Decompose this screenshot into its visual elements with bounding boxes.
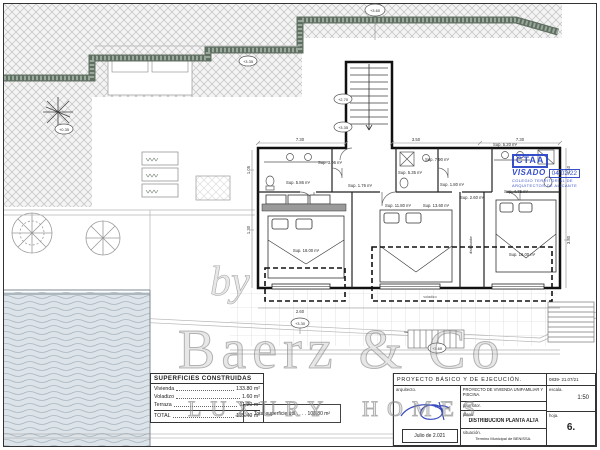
room-label: Sup. 16.00 m² xyxy=(509,252,536,257)
row-label: Terraza xyxy=(154,402,172,408)
dim-label: 3.80 xyxy=(566,235,571,244)
plan-title: DISTRIBUCION PLANTA ALTA xyxy=(468,418,538,424)
palm-tree-symbol xyxy=(43,97,73,127)
corridor-label: distribuidor xyxy=(469,235,473,253)
level-marker: +3.35 xyxy=(338,125,349,130)
drawing-sheet: 7.30 3.50 7.30 1.05 1.30 1.40 3.80 2.60 … xyxy=(0,0,600,450)
level-marker: +2.70 xyxy=(338,97,349,102)
stamp-fine-print-2: ARQUITECTOS DE ALICANTE xyxy=(512,184,600,188)
row-label: Voladizo xyxy=(154,394,174,400)
room-label: Sup. 13.60 m² xyxy=(423,203,450,208)
visado-stamp: CTAA VISADO 04/02/22 COLEGIO TERRITORIAL… xyxy=(512,150,600,189)
deck-square xyxy=(196,176,230,200)
dotted-leader xyxy=(174,406,238,407)
dim-label: 2.60 xyxy=(296,309,305,314)
scale-cell: escala. 1:50 xyxy=(547,386,595,412)
dim-label: 1.05 xyxy=(246,165,251,174)
bed-double xyxy=(496,200,556,272)
dim-label: 1.30 xyxy=(246,225,251,234)
level-marker: +3.60 xyxy=(432,346,443,351)
file-number: 0839- 21.07/21 xyxy=(547,374,595,386)
swimming-pool xyxy=(4,290,150,446)
row-value: 1.60 m² xyxy=(242,394,260,400)
room-label: Sup. 5.35 m² xyxy=(398,170,423,175)
tree-symbol xyxy=(12,213,52,253)
room-label: Sup. 1.80 m² xyxy=(440,182,465,187)
useful-area-box: Total superficie útil . . . . 108.80 m² xyxy=(243,404,341,423)
title-block: PROYECTO BÁSICO Y DE EJECUCIÓN. arquitec… xyxy=(393,373,596,446)
date-box: Julio de 2.021 xyxy=(402,429,458,443)
terrace-paving xyxy=(230,290,558,346)
bed-double xyxy=(380,210,452,282)
tree-symbol xyxy=(86,221,120,255)
table-row: Voladizo 1.60 m² xyxy=(154,394,260,400)
row-label: Vivienda xyxy=(154,386,174,392)
table-row: Vivienda 133.80 m² xyxy=(154,386,260,392)
dotted-leader xyxy=(176,398,240,399)
room-label: Sup. 3.06 m² xyxy=(318,160,343,165)
dim-label: 3.50 xyxy=(412,137,421,142)
location-label: situación. xyxy=(461,429,546,435)
level-marker: +3.30 xyxy=(295,321,306,326)
scale-value: 1:50 xyxy=(547,392,595,401)
ctaa-logo: CTAA xyxy=(512,154,548,168)
room-label: Sup. 18.00 m² xyxy=(293,248,320,253)
sheet-label: hoja. xyxy=(547,412,595,418)
row-label: TOTAL xyxy=(154,413,171,419)
bed-double xyxy=(262,195,346,278)
architect-label: arquitecto. xyxy=(394,386,460,392)
dim-label: 7.30 xyxy=(296,137,305,142)
room-label: Sup. 4.75 m² xyxy=(504,189,529,194)
sheet-number: 6. xyxy=(547,422,595,433)
dim-label: 7.30 xyxy=(516,137,525,142)
balcony-label: voladizo xyxy=(423,295,436,299)
level-marker: +3.35 xyxy=(243,59,254,64)
room-label: Sup. 11.80 m² xyxy=(385,203,412,208)
windows xyxy=(272,284,544,289)
room-label: Sup. 5.20 m² xyxy=(493,142,518,147)
visado-label: VISADO xyxy=(512,169,546,178)
level-marker: +0.35 xyxy=(59,127,70,132)
sheet-number-cell: hoja. 6. xyxy=(547,412,595,445)
room-label: Sup. 7.90 m² xyxy=(425,157,450,162)
areas-table-title: SUPERFICIES CONSTRUIDAS xyxy=(150,373,264,384)
location-cell: situación. Termino Municipal de BENISSA. xyxy=(461,429,546,445)
row-value: 133.80 m² xyxy=(236,386,260,392)
level-marker: +3.60 xyxy=(370,8,381,13)
project-type: PROYECTO BÁSICO Y DE EJECUCIÓN. xyxy=(394,374,546,386)
location-value: Termino Municipal de BENISSA. xyxy=(461,436,546,441)
room-label: Sup. 2.60 m² xyxy=(460,195,485,200)
visado-date: 04/02/22 xyxy=(549,169,580,178)
dotted-leader xyxy=(173,417,235,418)
room-label: Sup. 5.86 m² xyxy=(286,180,311,185)
planter-boxes xyxy=(142,152,178,197)
architect-signature xyxy=(395,394,475,428)
architect-cell: arquitecto. Julio de 2.021 xyxy=(394,386,461,445)
dotted-leader xyxy=(176,390,234,391)
room-label: Sup. 1.76 m² xyxy=(348,183,373,188)
